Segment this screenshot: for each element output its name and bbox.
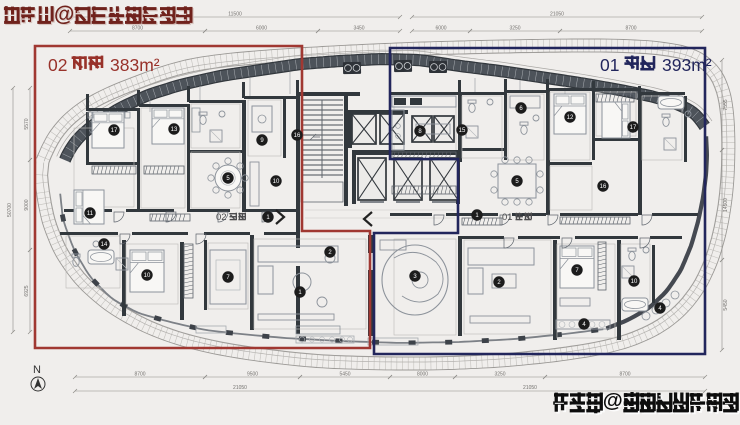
svg-text:12: 12 bbox=[567, 115, 574, 121]
svg-text:8000: 8000 bbox=[417, 372, 428, 378]
svg-text:8700: 8700 bbox=[625, 26, 636, 32]
svg-text:13: 13 bbox=[171, 127, 178, 133]
svg-text:9500: 9500 bbox=[247, 372, 258, 378]
svg-text:11500: 11500 bbox=[228, 12, 242, 18]
svg-text:11: 11 bbox=[87, 211, 94, 217]
svg-text:01: 01 bbox=[502, 212, 513, 223]
svg-text:9000: 9000 bbox=[24, 199, 30, 210]
svg-text:6000: 6000 bbox=[256, 26, 267, 32]
svg-text:16: 16 bbox=[294, 133, 301, 139]
svg-text:21050: 21050 bbox=[550, 12, 564, 18]
svg-text:383m²: 383m² bbox=[110, 55, 160, 75]
svg-text:5450: 5450 bbox=[723, 299, 729, 310]
svg-text:15: 15 bbox=[459, 128, 466, 134]
svg-text:8700: 8700 bbox=[619, 372, 630, 378]
svg-text:21050: 21050 bbox=[233, 385, 247, 391]
svg-text:01: 01 bbox=[600, 55, 619, 75]
svg-text:16: 16 bbox=[600, 184, 607, 190]
svg-text:50700: 50700 bbox=[7, 203, 13, 217]
svg-text:3450: 3450 bbox=[353, 26, 364, 32]
svg-text:5570: 5570 bbox=[24, 118, 30, 129]
svg-text:@: @ bbox=[603, 389, 623, 412]
svg-text:14: 14 bbox=[101, 242, 108, 248]
svg-text:3250: 3250 bbox=[494, 372, 505, 378]
svg-text:02: 02 bbox=[48, 55, 67, 75]
svg-text:@: @ bbox=[54, 3, 74, 26]
svg-text:21050: 21050 bbox=[523, 385, 537, 391]
svg-text:10: 10 bbox=[631, 279, 638, 285]
svg-text:6000: 6000 bbox=[435, 26, 446, 32]
svg-text:02: 02 bbox=[216, 212, 227, 223]
svg-text:N: N bbox=[33, 364, 41, 376]
svg-text:6925: 6925 bbox=[24, 285, 30, 296]
svg-text:8700: 8700 bbox=[134, 372, 145, 378]
svg-text:14500: 14500 bbox=[723, 198, 729, 212]
svg-text:17: 17 bbox=[630, 125, 637, 131]
svg-text:5450: 5450 bbox=[339, 372, 350, 378]
svg-text:3250: 3250 bbox=[509, 26, 520, 32]
svg-text:7555: 7555 bbox=[723, 99, 729, 110]
svg-text:8700: 8700 bbox=[132, 26, 143, 32]
svg-text:17: 17 bbox=[111, 128, 118, 134]
svg-text:393m²: 393m² bbox=[662, 55, 712, 75]
svg-text:10: 10 bbox=[273, 179, 280, 185]
svg-text:10: 10 bbox=[144, 273, 151, 279]
